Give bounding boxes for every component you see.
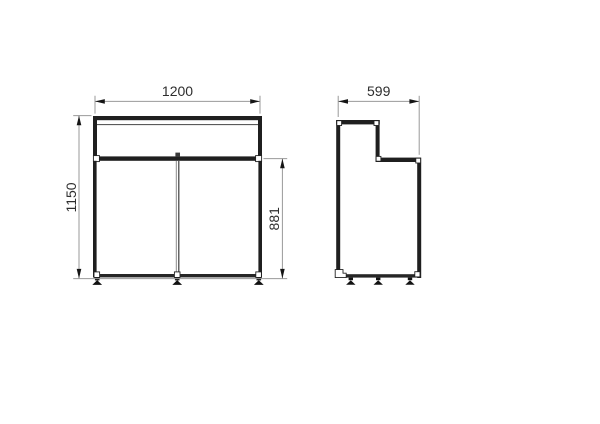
front-left-post-lower [93, 161, 97, 277]
front-shelf-connector-right [256, 156, 262, 162]
front-right-post-lower [258, 161, 262, 277]
front-dim-height: 1150 [63, 116, 92, 279]
side-foot-stem-center [376, 278, 380, 281]
side-left-post [336, 120, 340, 278]
front-bottom-connector-left [94, 272, 100, 278]
dim-depth-label: 599 [367, 83, 391, 99]
front-shelf-bar [93, 156, 262, 160]
side-connector-lower-right [416, 158, 421, 163]
side-lower-bar [376, 158, 422, 162]
front-center-tick [175, 153, 180, 157]
front-view: 1200 1150 881 [63, 83, 287, 285]
front-cabinet-outline [93, 116, 262, 278]
dim-height-label: 1150 [63, 182, 79, 212]
dim-door-arrow-top [280, 159, 285, 169]
side-top-bar [336, 120, 380, 124]
dim-door-label: 881 [266, 207, 282, 231]
front-dim-width: 1200 [95, 83, 260, 113]
dim-height-arrow-bottom [77, 269, 82, 279]
side-bottom-bar [337, 274, 421, 277]
technical-drawing-canvas: 1200 1150 881 [0, 0, 600, 424]
side-bracket-bottom-left [335, 270, 346, 278]
side-view: 599 [335, 83, 421, 285]
dim-height-arrow-top [77, 116, 82, 126]
side-feet [346, 278, 415, 285]
side-connector-top-step [374, 121, 379, 126]
front-bottom-connector-center [174, 272, 180, 278]
dim-width-arrow-right [250, 99, 260, 104]
front-foot-center [172, 280, 182, 285]
side-connector-top-left [337, 121, 342, 126]
side-foot-right [405, 280, 414, 285]
side-connector-bottom-right [415, 272, 420, 277]
front-dim-door-height: 881 [73, 159, 287, 279]
front-foot-right [254, 280, 264, 285]
side-profile-outline [335, 120, 421, 278]
side-foot-stem-left [349, 278, 353, 281]
dim-depth-arrow-right [409, 99, 419, 104]
side-foot-center [374, 280, 383, 285]
side-foot-stem-right [408, 278, 412, 281]
front-shelf-connector-left [93, 156, 99, 162]
dim-width-arrow-left [95, 99, 105, 104]
drawing-svg: 1200 1150 881 [0, 0, 600, 424]
front-right-post-upper [258, 116, 262, 161]
front-foot-left [92, 280, 102, 285]
side-foot-left [346, 280, 355, 285]
dim-width-label: 1200 [162, 83, 193, 99]
dim-door-arrow-bottom [280, 269, 285, 279]
front-left-post-upper [93, 116, 97, 161]
side-right-post [417, 162, 421, 278]
front-bottom-connector-right [256, 272, 262, 278]
dim-depth-arrow-left [338, 99, 348, 104]
side-connector-step-bottom [376, 156, 381, 161]
front-top-cap-bar [93, 116, 262, 120]
